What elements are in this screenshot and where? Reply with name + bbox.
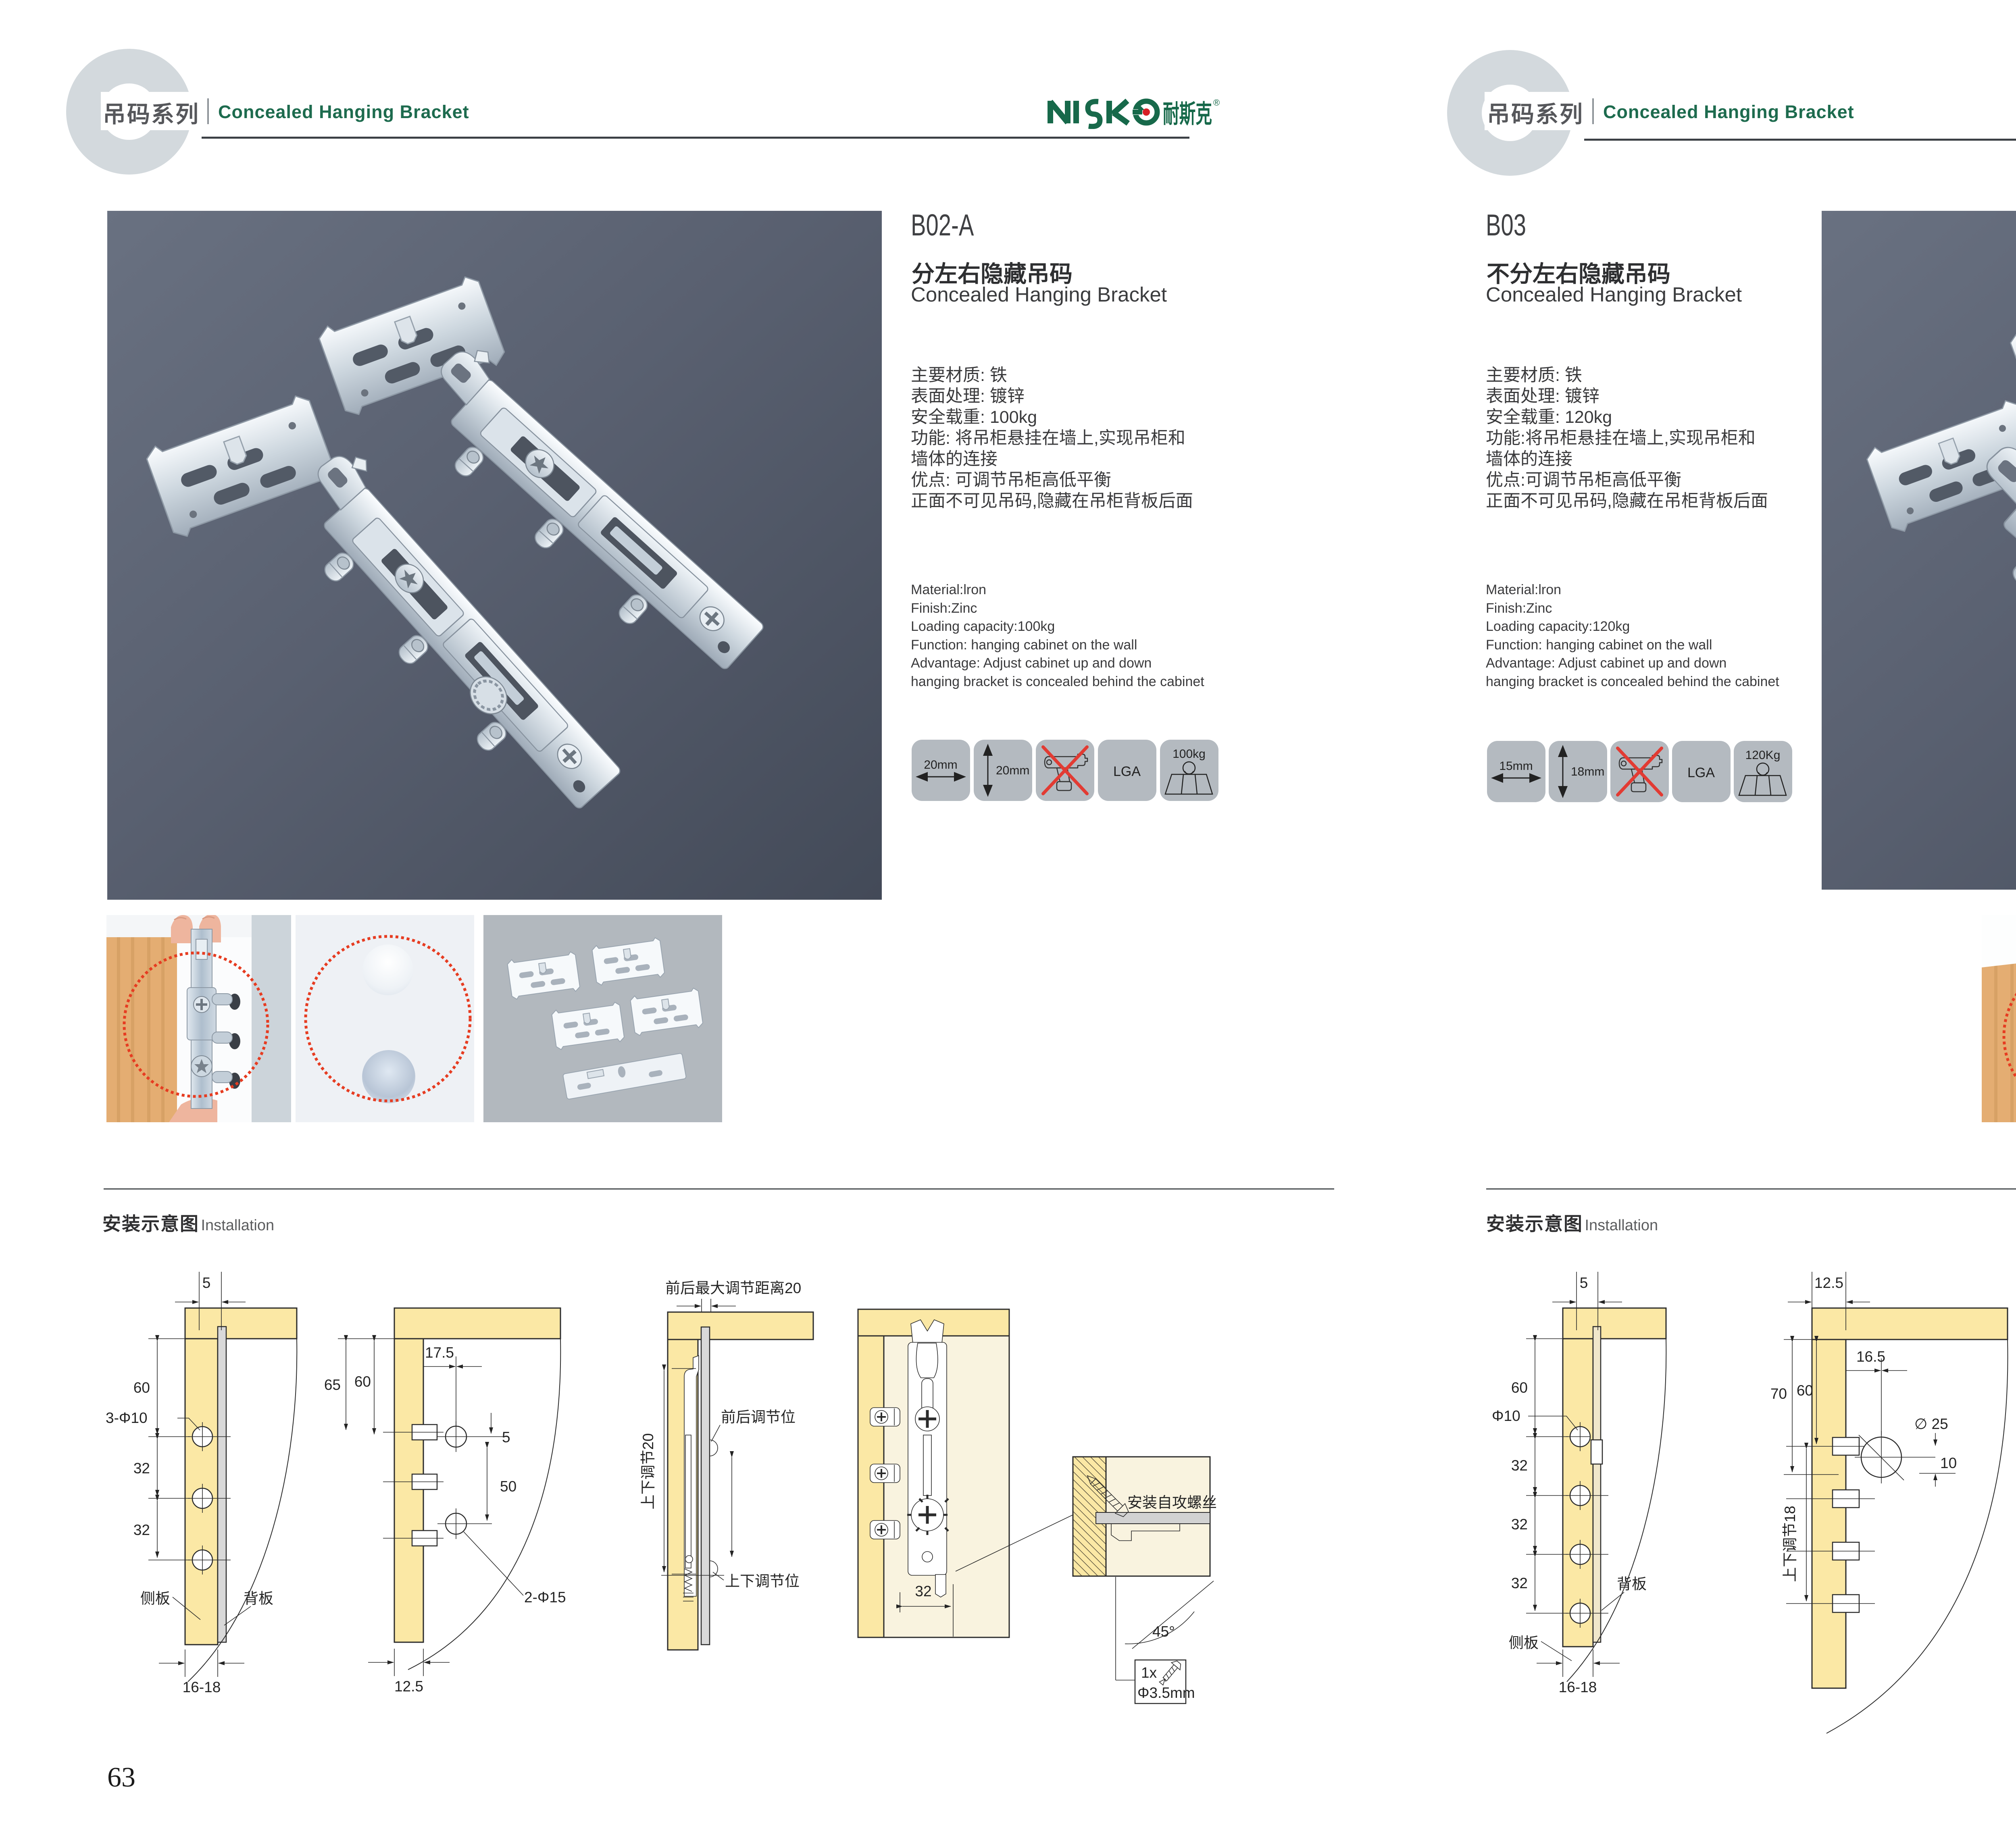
svg-text:100kg: 100kg bbox=[1173, 747, 1206, 761]
svg-text:上下调节20: 上下调节20 bbox=[640, 1433, 656, 1509]
svg-text:背板: 背板 bbox=[244, 1590, 273, 1607]
svg-text:65: 65 bbox=[324, 1377, 341, 1393]
svg-text:12.5: 12.5 bbox=[1814, 1275, 1843, 1291]
svg-text:15mm: 15mm bbox=[1499, 759, 1533, 773]
svg-text:20mm: 20mm bbox=[996, 764, 1029, 777]
svg-text:背板: 背板 bbox=[1617, 1576, 1647, 1592]
svg-text:5: 5 bbox=[202, 1275, 211, 1291]
svg-text:2-Φ15: 2-Φ15 bbox=[524, 1589, 566, 1606]
svg-text:16-18: 16-18 bbox=[1559, 1679, 1597, 1695]
svg-text:上下调节18: 上下调节18 bbox=[1782, 1506, 1798, 1582]
svg-text:60: 60 bbox=[1511, 1379, 1528, 1396]
svg-text:侧板: 侧板 bbox=[1509, 1635, 1539, 1651]
svg-text:3-Φ10: 3-Φ10 bbox=[106, 1410, 148, 1426]
svg-text:32: 32 bbox=[133, 1522, 150, 1538]
svg-text:32: 32 bbox=[1511, 1575, 1528, 1591]
svg-text:32: 32 bbox=[1511, 1516, 1528, 1533]
svg-text:®: ® bbox=[1213, 98, 1220, 108]
svg-text:Φ3.5mm: Φ3.5mm bbox=[1137, 1685, 1195, 1701]
svg-text:∅ 25: ∅ 25 bbox=[1914, 1416, 1948, 1432]
svg-text:17.5: 17.5 bbox=[425, 1344, 454, 1361]
svg-text:LGA: LGA bbox=[1687, 765, 1715, 780]
svg-text:70: 70 bbox=[1770, 1385, 1787, 1402]
svg-text:60: 60 bbox=[354, 1373, 371, 1390]
svg-text:Φ10: Φ10 bbox=[1492, 1408, 1520, 1424]
svg-text:安装自攻螺丝: 安装自攻螺丝 bbox=[1127, 1494, 1217, 1511]
svg-text:5: 5 bbox=[1580, 1275, 1588, 1291]
svg-text:60: 60 bbox=[1797, 1382, 1813, 1399]
svg-text:32: 32 bbox=[133, 1460, 150, 1477]
svg-text:前后调节位: 前后调节位 bbox=[721, 1409, 796, 1425]
svg-text:60: 60 bbox=[133, 1379, 150, 1396]
svg-text:上下调节位: 上下调节位 bbox=[725, 1573, 800, 1589]
svg-text:32: 32 bbox=[1511, 1457, 1528, 1474]
svg-text:LGA: LGA bbox=[1113, 764, 1141, 779]
svg-text:侧板: 侧板 bbox=[140, 1590, 170, 1607]
svg-text:20mm: 20mm bbox=[924, 758, 957, 772]
svg-text:前后最大调节距离20: 前后最大调节距离20 bbox=[665, 1280, 801, 1296]
svg-text:耐斯克: 耐斯克 bbox=[1163, 100, 1212, 128]
svg-text:32: 32 bbox=[915, 1583, 931, 1599]
svg-text:10: 10 bbox=[1940, 1455, 1957, 1471]
svg-text:5: 5 bbox=[502, 1429, 510, 1446]
svg-text:120Kg: 120Kg bbox=[1745, 749, 1781, 762]
svg-text:16.5: 16.5 bbox=[1856, 1348, 1885, 1365]
svg-text:18mm: 18mm bbox=[1571, 765, 1604, 778]
svg-text:50: 50 bbox=[500, 1478, 516, 1495]
svg-text:45°: 45° bbox=[1152, 1623, 1175, 1640]
svg-text:12.5: 12.5 bbox=[394, 1678, 423, 1695]
svg-text:16-18: 16-18 bbox=[183, 1679, 221, 1695]
svg-text:1x: 1x bbox=[1141, 1664, 1157, 1681]
